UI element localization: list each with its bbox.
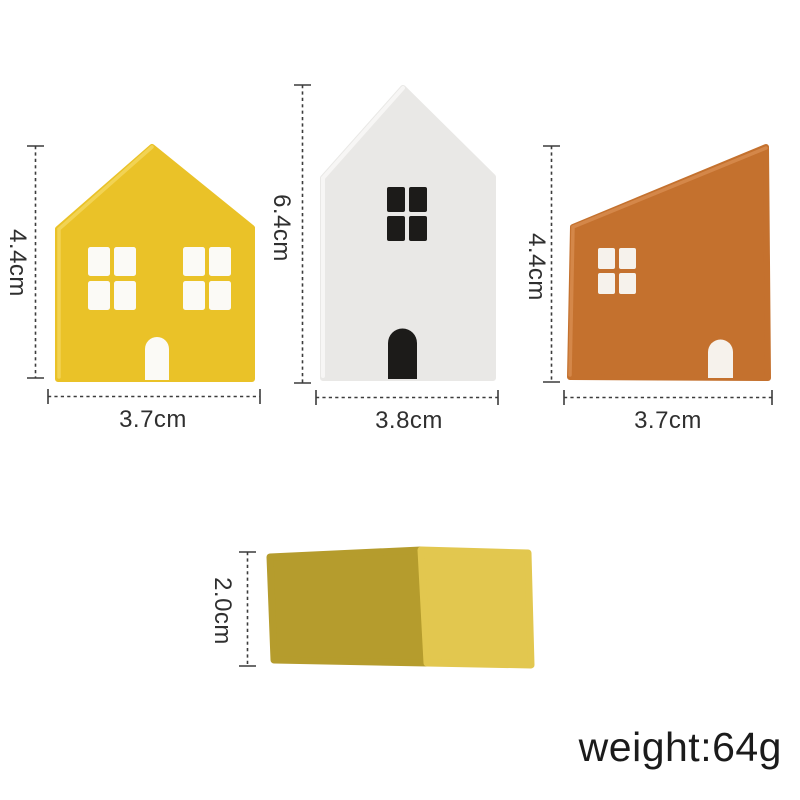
white-house-width-dimension: [316, 390, 498, 405]
orange-house-door: [708, 340, 733, 379]
white-house: [323, 88, 493, 379]
yellow-house-width-label: 3.7cm: [93, 406, 213, 434]
yellow-block-front-face: [421, 550, 531, 665]
white-house-height-dimension: [294, 85, 311, 383]
product-weight-label: weight:64g: [579, 724, 782, 771]
figure-canvas: [0, 0, 800, 800]
yellow-house-width-dimension: [48, 389, 260, 404]
yellow-house-door: [145, 337, 169, 380]
white-house-width-label: 3.8cm: [349, 407, 469, 435]
product-dimension-image: 4.4cm 6.4cm 4.4cm 2.0cm 3.7cm 3.8cm 3.7c…: [0, 0, 800, 800]
orange-house-width-label: 3.7cm: [608, 407, 728, 435]
yellow-block-side-face: [270, 550, 427, 663]
white-house-door: [388, 329, 417, 380]
block-height-dimension: [239, 552, 256, 666]
yellow-house-height-label: 4.4cm: [2, 203, 32, 323]
orange-house-height-label: 4.4cm: [521, 207, 551, 327]
orange-house-width-dimension: [564, 390, 772, 405]
block-height-label: 2.0cm: [207, 551, 237, 671]
yellow-house: [58, 147, 252, 380]
orange-house: [570, 147, 768, 378]
white-house-height-label: 6.4cm: [266, 168, 296, 288]
yellow-block: [270, 550, 531, 665]
